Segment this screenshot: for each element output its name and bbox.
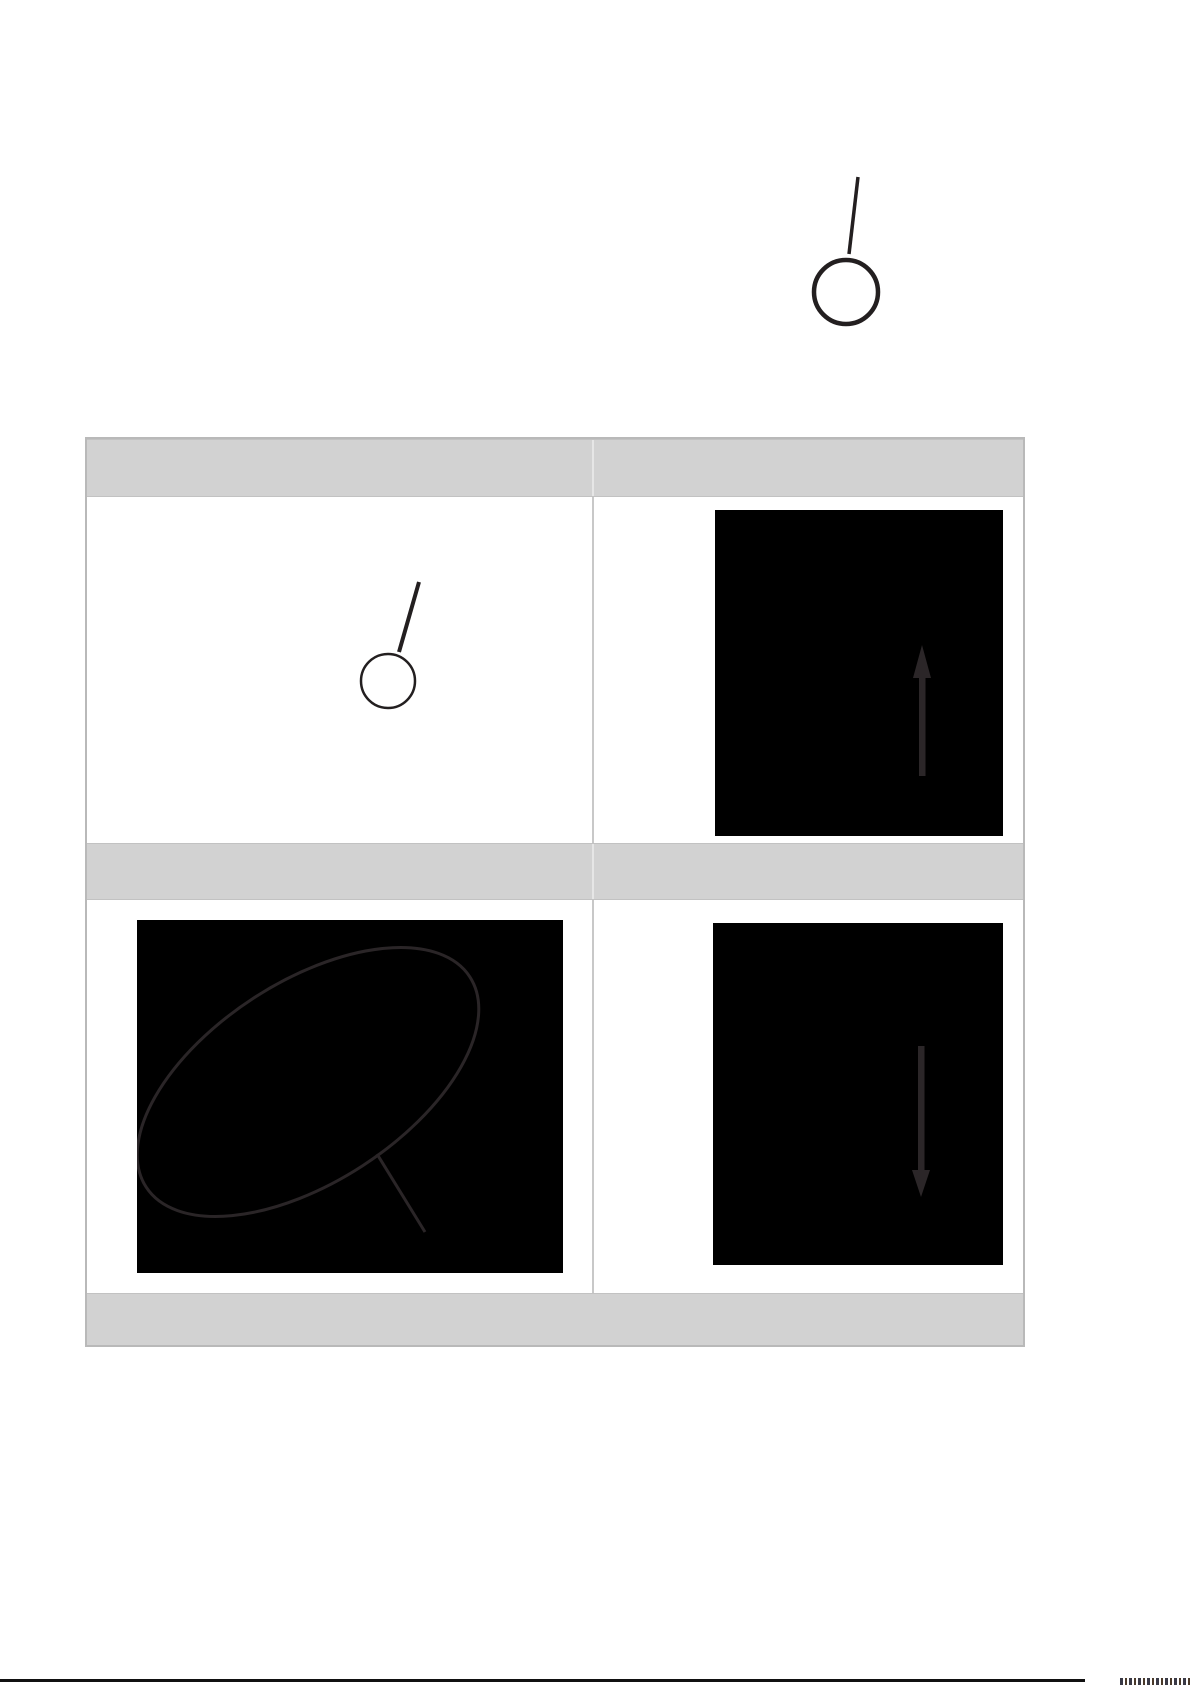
table-footer-row (87, 1293, 1023, 1345)
clipped-footer-text (1120, 1678, 1190, 1685)
header-cell-right-2 (596, 844, 1023, 899)
arrow-down-icon (713, 923, 1003, 1265)
header-cell-right-1 (596, 440, 1023, 496)
cell-pin-illustration (87, 497, 594, 843)
illustration-table (85, 437, 1025, 1347)
arrow-up-icon (715, 510, 1003, 836)
table-header-row-1 (87, 439, 1023, 497)
eject-pin-icon (87, 497, 594, 843)
table-row (87, 497, 1023, 843)
black-panel (137, 920, 563, 1273)
bottom-horizontal-rule (0, 1679, 1085, 1682)
black-panel (715, 510, 1003, 836)
cell-oval-panel (87, 900, 594, 1293)
header-cell-left-1 (87, 440, 594, 496)
header-cell-left-2 (87, 844, 594, 899)
table-header-row-2 (87, 843, 1023, 900)
document-page (0, 0, 1192, 1685)
cell-arrow-up-panel (596, 497, 1023, 843)
table-row (87, 900, 1023, 1293)
eject-pin-icon (730, 140, 970, 350)
tilted-oval-with-handle-icon (137, 920, 563, 1273)
cell-arrow-down-panel (596, 900, 1023, 1293)
black-panel (713, 923, 1003, 1265)
